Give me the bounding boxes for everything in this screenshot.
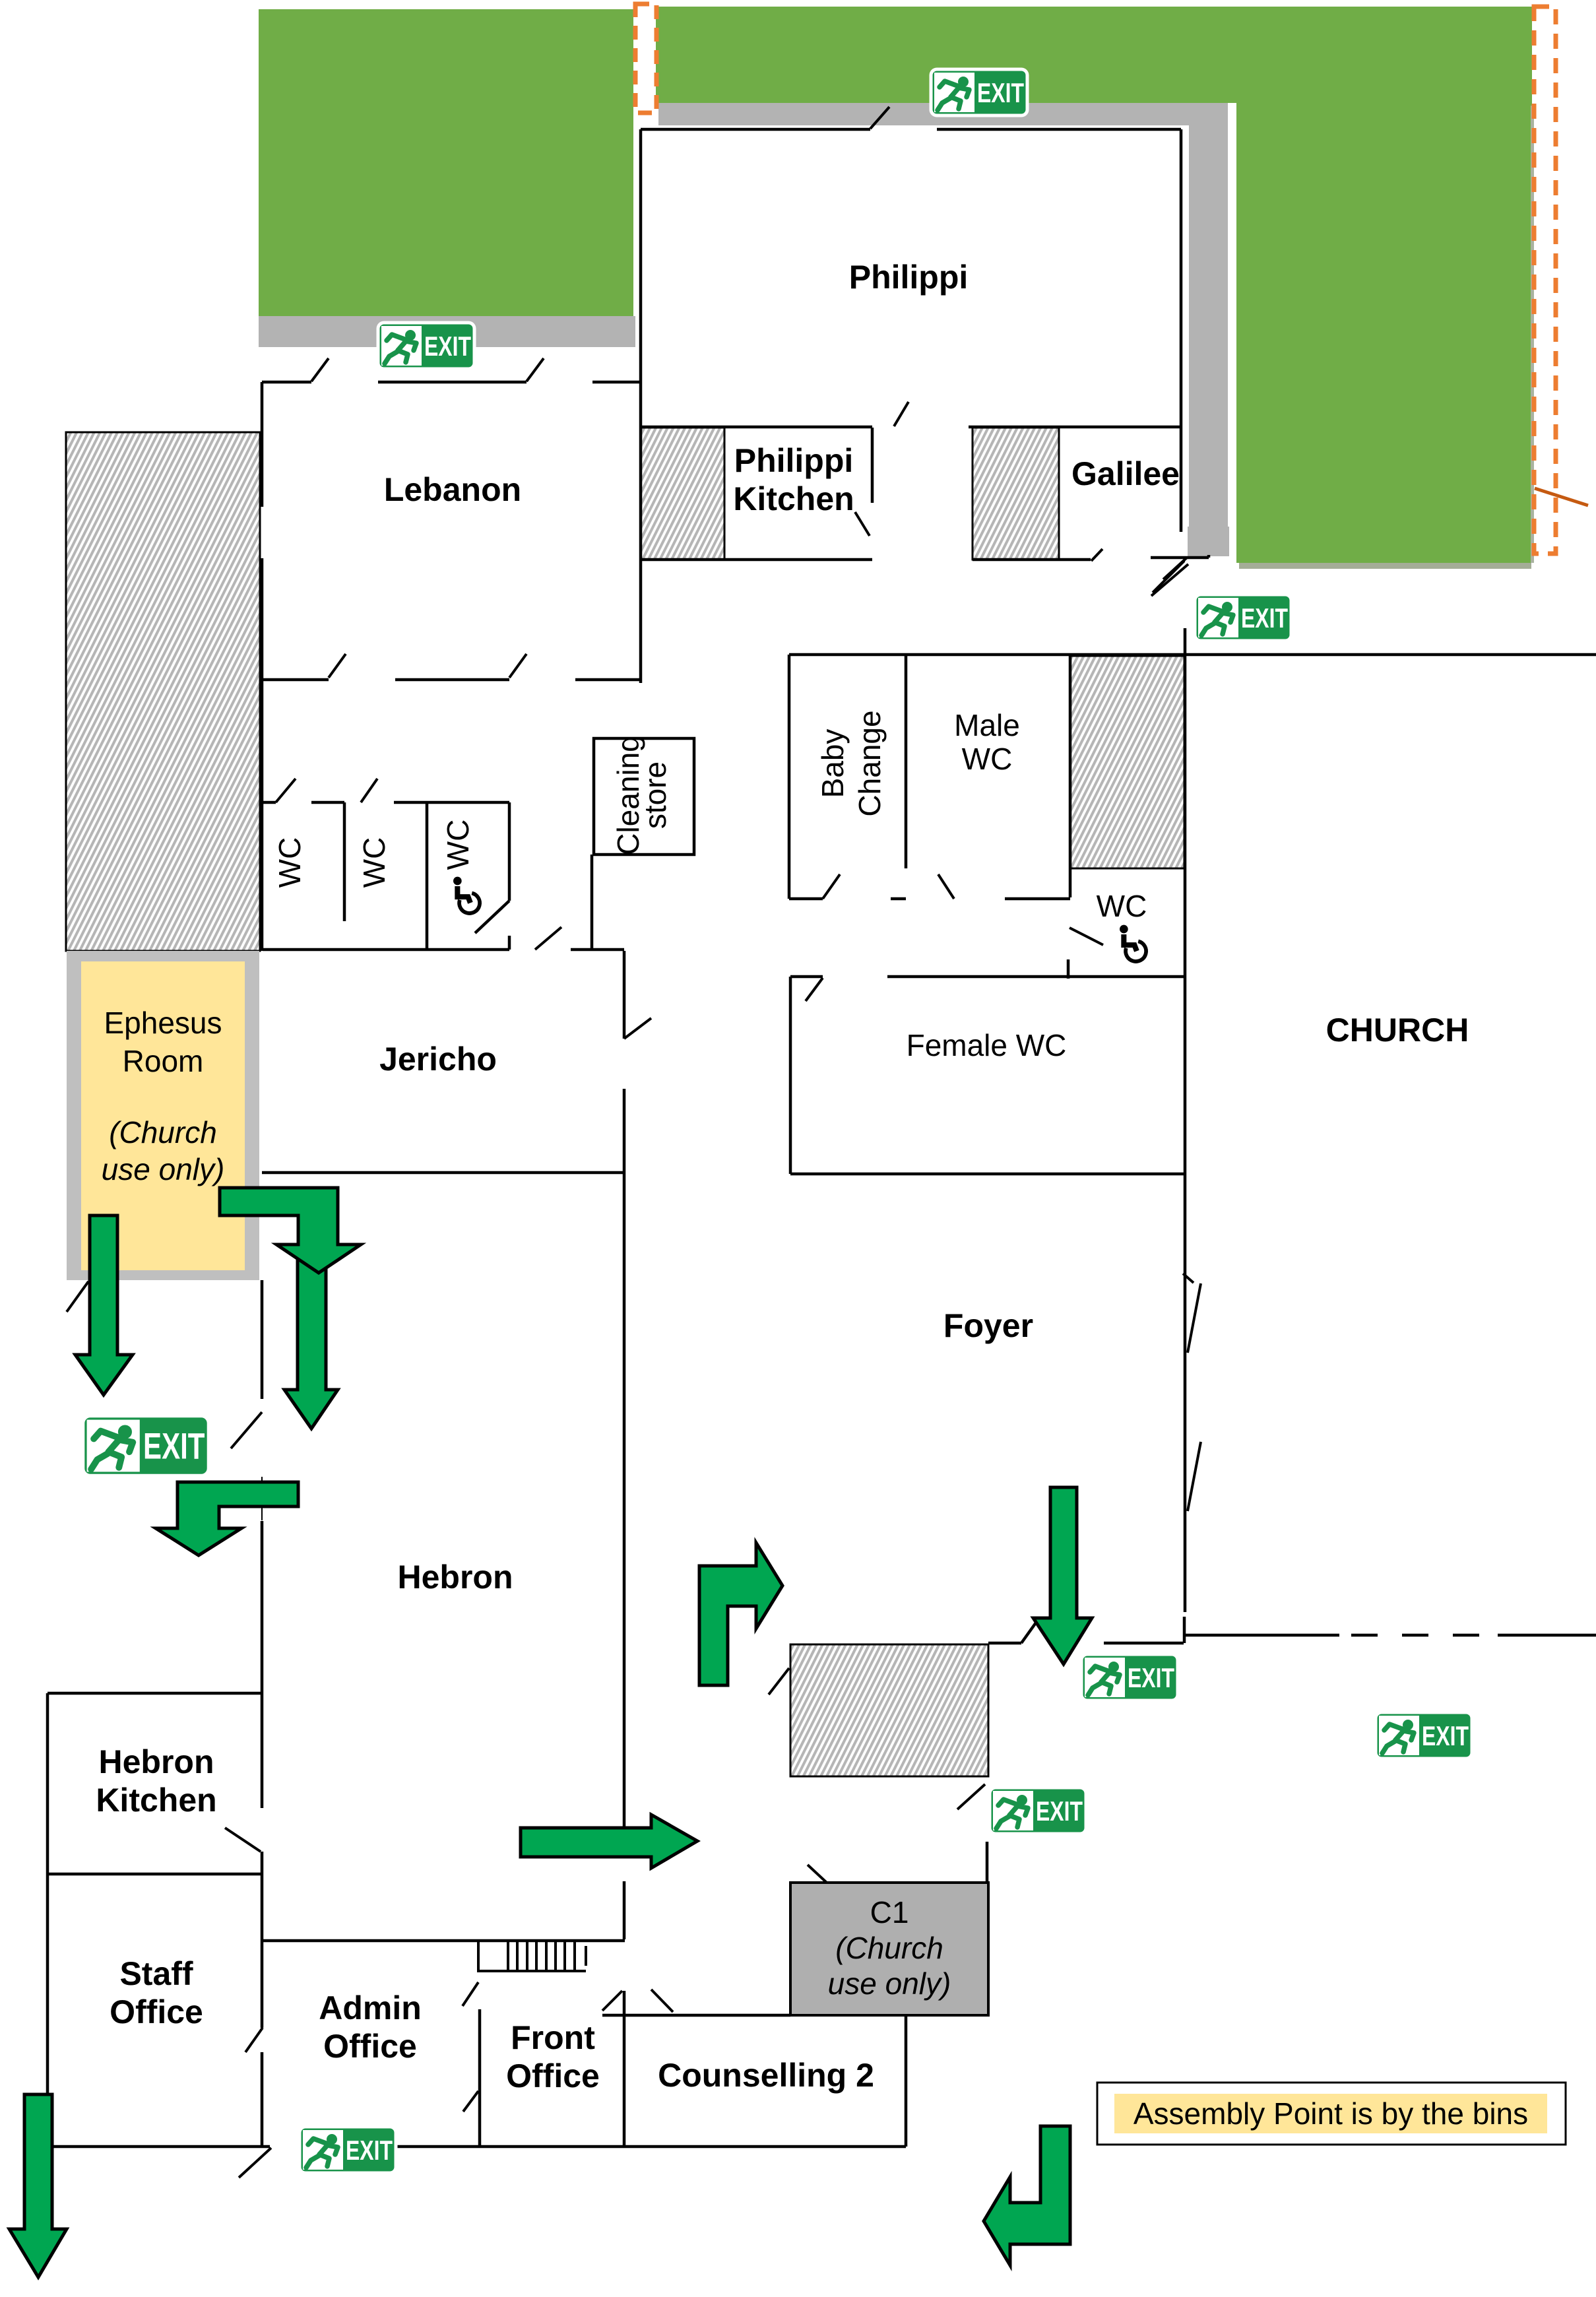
svg-text:Lebanon: Lebanon: [384, 471, 521, 508]
svg-text:use only): use only): [828, 1966, 951, 2001]
svg-text:Philippi: Philippi: [849, 259, 969, 296]
svg-text:WC: WC: [962, 742, 1013, 776]
svg-text:WC: WC: [272, 837, 307, 888]
svg-text:(Church: (Church: [835, 1931, 943, 1965]
svg-text:(Church: (Church: [109, 1115, 217, 1149]
svg-text:Admin: Admin: [319, 1990, 422, 2026]
svg-text:Philippi: Philippi: [734, 442, 854, 479]
svg-text:Room: Room: [123, 1044, 204, 1078]
svg-text:Jericho: Jericho: [379, 1041, 497, 1078]
svg-text:Assembly Point is by the bins: Assembly Point is by the bins: [1133, 2096, 1528, 2131]
svg-text:Counselling 2: Counselling 2: [658, 2057, 874, 2094]
svg-text:WC: WC: [441, 820, 475, 870]
svg-text:Office: Office: [506, 2057, 600, 2094]
svg-text:use only): use only): [102, 1152, 225, 1186]
svg-text:Male: Male: [954, 708, 1020, 742]
svg-text:Front: Front: [511, 2019, 595, 2056]
svg-text:Office: Office: [110, 1993, 203, 2030]
svg-text:Female WC: Female WC: [907, 1028, 1067, 1062]
svg-text:WC: WC: [1097, 889, 1147, 923]
svg-text:Kitchen: Kitchen: [733, 480, 854, 517]
svg-text:Kitchen: Kitchen: [96, 1782, 216, 1819]
svg-text:store: store: [638, 761, 672, 829]
svg-text:Baby: Baby: [815, 729, 850, 798]
svg-text:Foyer: Foyer: [943, 1307, 1033, 1344]
svg-text:Office: Office: [323, 2028, 417, 2065]
svg-text:Galilee: Galilee: [1071, 455, 1180, 492]
svg-text:Change: Change: [852, 710, 887, 816]
svg-text:C1: C1: [870, 1895, 909, 1929]
svg-text:WC: WC: [357, 837, 391, 888]
svg-text:CHURCH: CHURCH: [1326, 1012, 1469, 1049]
svg-text:Hebron: Hebron: [99, 1743, 214, 1780]
svg-text:Ephesus: Ephesus: [104, 1006, 222, 1040]
svg-text:Staff: Staff: [119, 1955, 193, 1992]
svg-text:Hebron: Hebron: [398, 1559, 513, 1596]
